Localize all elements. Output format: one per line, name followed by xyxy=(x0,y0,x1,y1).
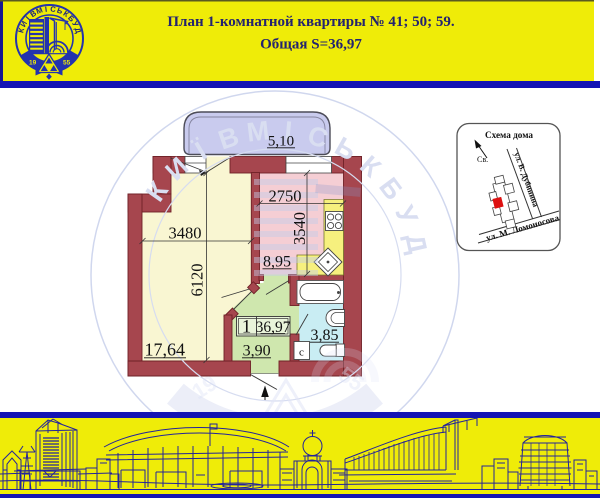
svg-text:17,64: 17,64 xyxy=(145,340,186,360)
svg-text:55: 55 xyxy=(63,60,71,67)
svg-text:3540: 3540 xyxy=(290,212,309,245)
svg-text:Схема дома: Схема дома xyxy=(485,130,533,140)
svg-text:8,95: 8,95 xyxy=(263,253,291,270)
svg-text:с: с xyxy=(299,347,304,359)
svg-text:6120: 6120 xyxy=(188,264,207,297)
svg-text:Д: Д xyxy=(399,231,432,256)
svg-text:Св.: Св. xyxy=(477,155,488,164)
svg-text:3,90: 3,90 xyxy=(243,343,271,360)
svg-text:3,85: 3,85 xyxy=(311,327,339,344)
svg-text:Общая S=36,97: Общая S=36,97 xyxy=(260,37,362,53)
svg-text:5,10: 5,10 xyxy=(268,134,294,150)
svg-text:Б: Б xyxy=(373,172,409,205)
svg-text:3480: 3480 xyxy=(169,224,202,243)
svg-text:План 1-комнатной квартиры № 41: План 1-комнатной квартиры № 41; 50; 59. xyxy=(167,14,455,30)
svg-text:2750: 2750 xyxy=(269,187,302,206)
svg-text:У: У xyxy=(389,201,424,230)
svg-text:1: 1 xyxy=(242,317,252,338)
svg-text:19: 19 xyxy=(29,60,37,67)
